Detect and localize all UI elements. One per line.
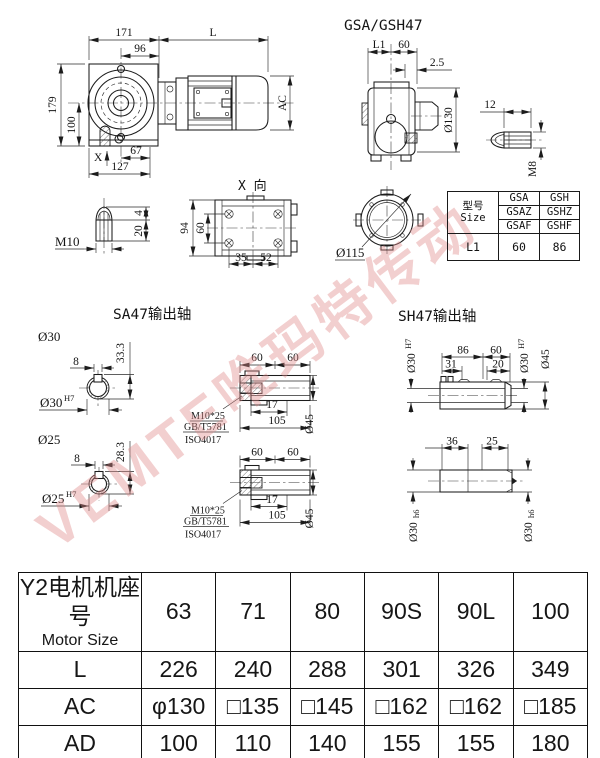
sh47-d30h7-left: Ø30 <box>406 353 418 373</box>
sh47-title: SH47输出轴 <box>398 308 476 325</box>
sh47-d30h7-left-sup: H7 <box>403 339 413 349</box>
sa47-dim-45b: Ø45 <box>304 508 316 528</box>
sa47-dim-33-3: 33.3 <box>115 343 127 363</box>
size-table-header: 型号 Size <box>448 192 499 234</box>
sa47-note3b: ISO4017 <box>185 530 221 541</box>
dim-96: 96 <box>134 43 146 55</box>
cell: □145 <box>290 688 364 725</box>
size-table-header-en: Size <box>448 213 498 224</box>
sh47-dim-36: 36 <box>446 436 458 448</box>
sa47-dim-60c: 60 <box>251 447 263 459</box>
table-row: L1 60 86 <box>448 234 580 261</box>
sa47-note1a: M10*25 <box>191 411 225 422</box>
dim-M8: M8 <box>527 161 539 177</box>
cell: 349 <box>513 651 587 688</box>
table-row: AC φ130 □135 □145 □162 □162 □185 <box>19 688 588 725</box>
sa47-d30-label: Ø30 <box>38 329 60 344</box>
cell: 155 <box>364 725 438 758</box>
cell: 100 <box>142 725 216 758</box>
dim-L1: L1 <box>373 39 386 51</box>
dim-12: 12 <box>484 99 496 111</box>
size-col: 90S <box>364 573 438 652</box>
dim-35: 35 <box>235 252 247 264</box>
dim-AC: AC <box>277 95 289 111</box>
cell: 226 <box>142 651 216 688</box>
cell: □135 <box>216 688 290 725</box>
cell: 301 <box>364 651 438 688</box>
dim-L: L <box>209 27 216 39</box>
view-arrow-x-label: X <box>94 152 103 164</box>
sa47-dim-8a: 8 <box>73 356 79 368</box>
cell: □185 <box>513 688 587 725</box>
sa47-section: SA47输出轴 Ø30 8 33.3 Ø30 H7 Ø25 <box>38 306 322 541</box>
dim-2-5: 2.5 <box>430 57 445 69</box>
dim-60: 60 <box>398 39 410 51</box>
sa47-d25h7-label: Ø25 <box>42 491 64 506</box>
motor-size-table: Y2电机机座号 Motor Size 63 71 80 90S 90L 100 … <box>18 572 588 758</box>
table-row: 型号 Size GSA GSH <box>448 192 580 206</box>
size-table-header-cn: 型号 <box>448 201 498 212</box>
sa47-d30h7-sup: H7 <box>64 393 74 403</box>
front-view: 171 L 96 179 100 AC 67 127 X <box>47 27 294 178</box>
sa47-note2a: GB/T5781 <box>184 422 227 433</box>
cell: □162 <box>364 688 438 725</box>
dim-d115: Ø115 <box>336 245 364 260</box>
sh47-d30h6-left: Ø30 <box>408 522 420 542</box>
table-row: L 226 240 288 301 326 349 <box>19 651 588 688</box>
size-col: 100 <box>513 573 587 652</box>
table-row: AD 100 110 140 155 155 180 <box>19 725 588 758</box>
row-label-AD: AD <box>19 725 142 758</box>
cell: φ130 <box>142 688 216 725</box>
sh47-dim-45: Ø45 <box>540 349 552 369</box>
sa47-dim-17a: 17 <box>266 399 278 411</box>
l1-value-gsh: 86 <box>540 234 580 261</box>
dim-52: 52 <box>260 252 272 264</box>
cell: 155 <box>439 725 513 758</box>
row-label-L: L <box>19 651 142 688</box>
sa47-title: SA47输出轴 <box>113 306 191 323</box>
sa47-dim-8b: 8 <box>74 453 80 465</box>
sa47-dim-45a: Ø45 <box>304 414 316 434</box>
cell: □162 <box>439 688 513 725</box>
m10-stud-detail: 4 20 M10 <box>55 198 150 256</box>
sa47-note2b: GB/T5781 <box>184 517 227 528</box>
sa47-dim-17b: 17 <box>266 494 278 506</box>
label-m10: M10 <box>55 234 80 249</box>
size-cell: GSA <box>499 192 540 206</box>
sa47-d25h7-sup: H7 <box>66 489 76 499</box>
size-col: 63 <box>142 573 216 652</box>
l1-label: L1 <box>448 234 499 261</box>
dim-20: 20 <box>133 225 145 237</box>
cell: 140 <box>290 725 364 758</box>
size-cell: GSHZ <box>540 206 580 220</box>
dim-100: 100 <box>66 116 78 134</box>
flange-view: Ø115 <box>335 186 423 260</box>
cell: 180 <box>513 725 587 758</box>
motor-size-header-cn: Y2电机机座号 <box>19 573 141 631</box>
sa47-dim-28-3: 28.3 <box>115 442 127 462</box>
size-cell: GSAZ <box>499 206 540 220</box>
size-cell: GSAF <box>499 220 540 234</box>
sh47-d30h6-right-sub: h6 <box>526 510 536 519</box>
table-row: Y2电机机座号 Motor Size 63 71 80 90S 90L 100 <box>19 573 588 652</box>
sa47-dim-105b: 105 <box>268 510 286 522</box>
sh47-dim-86: 86 <box>457 345 469 357</box>
size-col: 80 <box>290 573 364 652</box>
sa47-dim-105a: 105 <box>268 415 286 427</box>
sh47-d30h6-right: Ø30 <box>523 522 535 542</box>
dim-171: 171 <box>115 27 133 39</box>
dim-67: 67 <box>130 145 142 157</box>
dim-179: 179 <box>47 96 59 114</box>
sa47-note1b: M10*25 <box>191 506 225 517</box>
sh47-dim-31: 31 <box>445 359 457 371</box>
sh47-dim-25: 25 <box>486 436 498 448</box>
sa47-dim-60a: 60 <box>251 352 263 364</box>
sa47-d30h7-label: Ø30 <box>40 395 62 410</box>
cell: 110 <box>216 725 290 758</box>
size-col: 90L <box>439 573 513 652</box>
size-cell: GSHF <box>540 220 580 234</box>
sh47-d30h7-right-sup: H7 <box>516 339 526 349</box>
cell: 288 <box>290 651 364 688</box>
dim-127: 127 <box>111 161 129 173</box>
sa47-note3a: ISO4017 <box>185 435 221 446</box>
sa47-dim-60d: 60 <box>287 447 299 459</box>
side-view-gsa-gsh47: GSA/GSH47 L1 60 2.5 <box>344 18 546 177</box>
x-view-label: X 向 <box>238 178 267 194</box>
cell: 326 <box>439 651 513 688</box>
motor-size-header: Y2电机机座号 Motor Size <box>19 573 142 652</box>
dim-94: 94 <box>179 222 191 234</box>
dim-4: 4 <box>133 210 145 216</box>
cell: 240 <box>216 651 290 688</box>
sh47-dim-60: 60 <box>490 345 502 357</box>
dim-d130: Ø130 <box>443 107 455 133</box>
sa47-d25-label: Ø25 <box>38 432 60 447</box>
dim-60: 60 <box>195 222 207 234</box>
gearbox-drawing-sheet: VEMTE唯玛特传动 <box>0 0 600 758</box>
size-col: 71 <box>216 573 290 652</box>
sh47-d30h6-left-sub: h6 <box>411 510 421 519</box>
row-label-AC: AC <box>19 688 142 725</box>
sh47-section: SH47输出轴 86 60 31 20 <box>398 308 552 542</box>
motor-size-header-en: Motor Size <box>19 631 141 651</box>
size-cell: GSH <box>540 192 580 206</box>
sa47-dim-60b: 60 <box>287 352 299 364</box>
l1-value-gsa: 60 <box>499 234 540 261</box>
size-table: 型号 Size GSA GSH GSAZ GSHZ GSAF GSHF L1 6… <box>447 191 580 261</box>
sh47-dim-20: 20 <box>492 359 504 371</box>
sh47-d30h7-right: Ø30 <box>519 353 531 373</box>
side-view-title: GSA/GSH47 <box>344 18 423 34</box>
x-direction-view: X 向 94 60 <box>179 178 299 268</box>
